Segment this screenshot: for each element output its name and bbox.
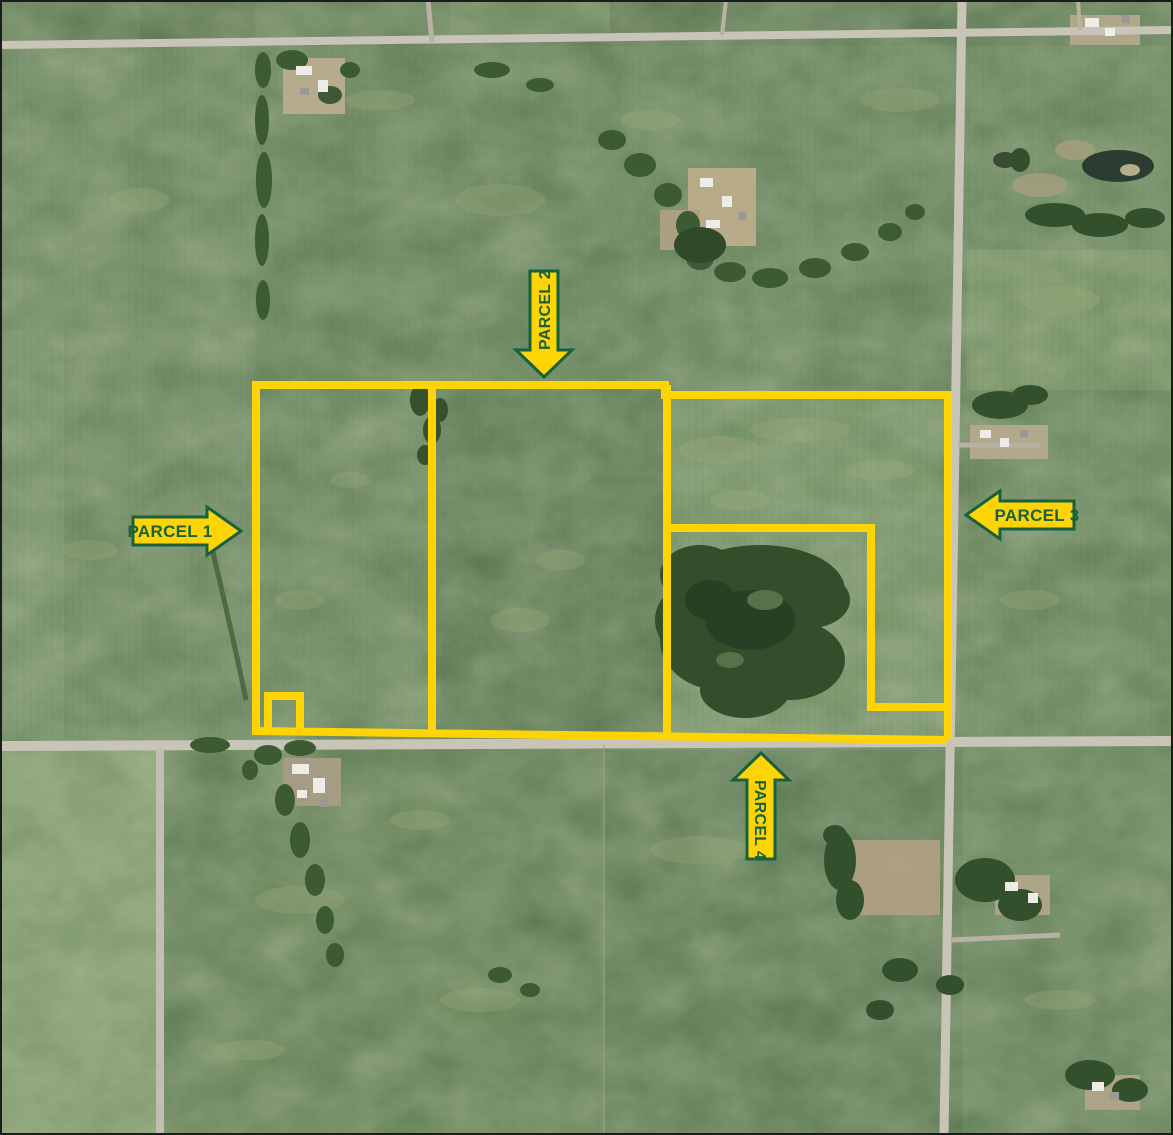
parcel-4-label-text: PARCEL 4 <box>751 780 768 860</box>
parcel-2-label-text: PARCEL 2 <box>537 270 554 350</box>
parcel-2-label: PARCEL 2 <box>514 268 574 380</box>
parcel-boundary-outline <box>252 385 948 740</box>
parcel-3-label-text: PARCEL 3 <box>995 506 1080 525</box>
parcel-1-label: PARCEL 1 <box>130 505 244 557</box>
parcel-3-label: PARCEL 3 <box>963 489 1077 541</box>
aerial-parcel-map: PARCEL 1 PARCEL 2 PARCEL 3 PARCEL 4 <box>0 0 1173 1135</box>
parcel-4-label: PARCEL 4 <box>731 750 791 862</box>
parcel-1-label-text: PARCEL 1 <box>128 522 213 541</box>
parcel-boundary-overlay <box>0 0 1173 1135</box>
